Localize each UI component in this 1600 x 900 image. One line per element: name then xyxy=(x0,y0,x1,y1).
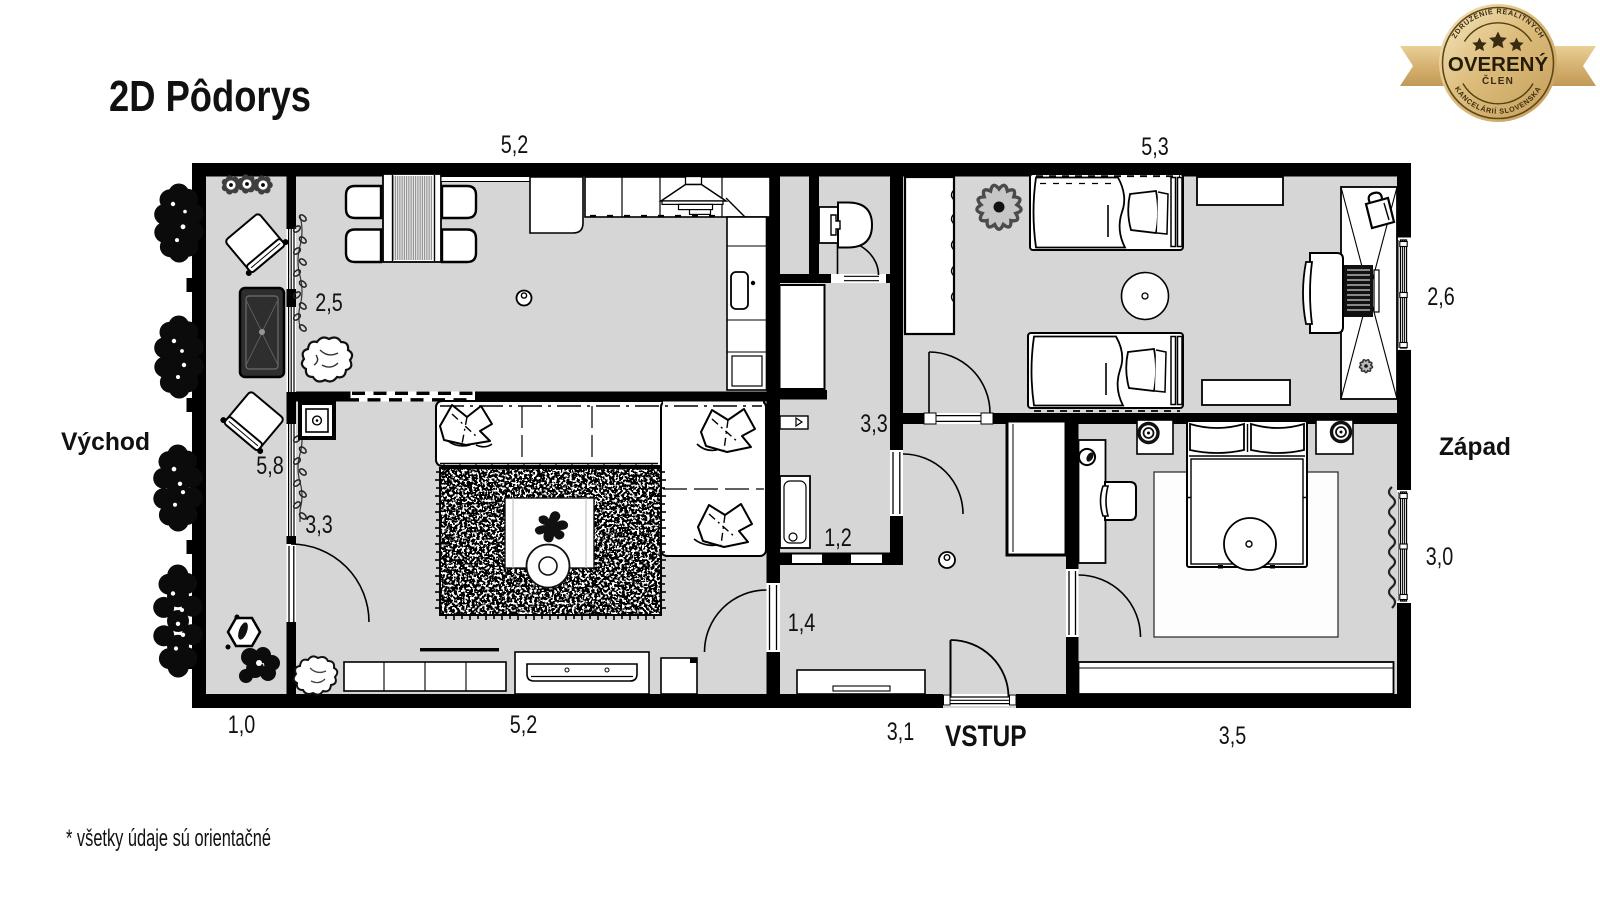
svg-text:3,0: 3,0 xyxy=(1426,543,1454,571)
svg-text:Východ: Východ xyxy=(61,428,150,456)
svg-text:5,2: 5,2 xyxy=(501,131,529,159)
svg-text:5,2: 5,2 xyxy=(510,711,538,739)
svg-text:* všetky údaje sú orientačné: * všetky údaje sú orientačné xyxy=(66,825,271,852)
svg-text:1,2: 1,2 xyxy=(824,524,852,552)
svg-text:5,3: 5,3 xyxy=(1141,133,1169,161)
svg-text:3,3: 3,3 xyxy=(305,511,333,539)
svg-text:2D Pôdorys: 2D Pôdorys xyxy=(109,72,311,121)
svg-text:OVERENÝ: OVERENÝ xyxy=(1448,52,1549,76)
svg-text:3,1: 3,1 xyxy=(887,718,915,746)
svg-text:1,0: 1,0 xyxy=(228,711,256,739)
svg-text:ČLEN: ČLEN xyxy=(1482,74,1514,87)
svg-text:2,6: 2,6 xyxy=(1427,283,1455,311)
svg-text:3,5: 3,5 xyxy=(1219,722,1247,750)
svg-text:5,8: 5,8 xyxy=(256,452,284,480)
svg-text:3,3: 3,3 xyxy=(860,410,888,438)
svg-text:Západ: Západ xyxy=(1439,433,1511,461)
svg-text:2,5: 2,5 xyxy=(315,289,343,317)
svg-text:1,4: 1,4 xyxy=(788,609,816,637)
svg-text:VSTUP: VSTUP xyxy=(945,720,1027,753)
